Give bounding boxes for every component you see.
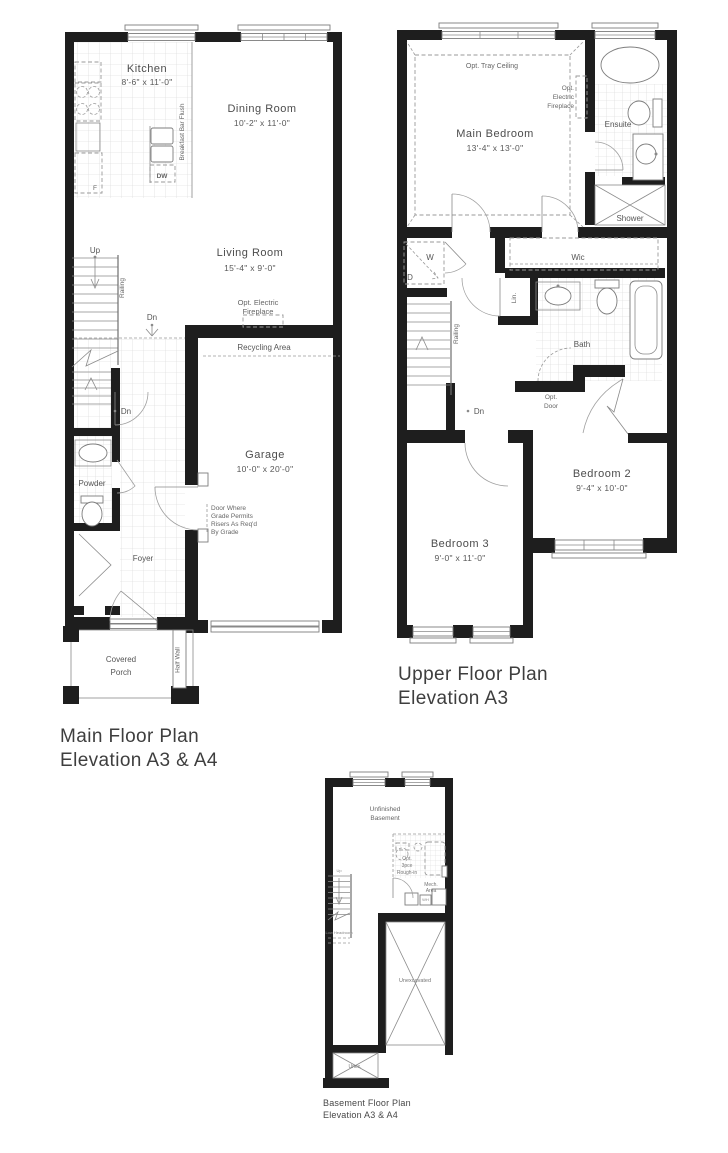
- unex-label: Unex.: [348, 1064, 361, 1070]
- basement-plan-subtitle: Elevation A3 & A4: [323, 1110, 398, 1120]
- fireplace-label-1: Opt. Electric: [238, 298, 279, 307]
- grade-note-2: Grade Permits: [211, 513, 254, 520]
- breakfast-bar-label: Breakfast Bar Flush: [179, 103, 186, 160]
- grade-note-4: By Grade: [211, 529, 239, 536]
- wic-label: Wic: [571, 253, 584, 262]
- wh-label: WH: [422, 897, 429, 902]
- basement-floor-plan: Unfinished Basement Opt. 3pce Rough-in M…: [310, 770, 475, 1153]
- bath-toilet: [597, 288, 617, 314]
- bedroom2-label: Bedroom 2: [573, 468, 631, 480]
- vanity-sink: [636, 144, 656, 164]
- grade-note-1: Door Where: [211, 505, 246, 512]
- main-bedroom-label: Main Bedroom: [456, 128, 534, 140]
- dining-label: Dining Room: [227, 103, 296, 115]
- unexcavated-label: Unexcavated: [399, 978, 431, 984]
- main-plan-title: Main Floor Plan: [60, 726, 199, 747]
- kitchen-label: Kitchen: [127, 63, 167, 75]
- u-fireplace-3: Fireplace: [547, 103, 574, 110]
- garage-dims: 10'-0" x 20'-0": [237, 464, 294, 474]
- low-headroom-label: Low Headroom: [325, 930, 353, 935]
- rough-in-3: Rough-in: [397, 870, 418, 876]
- tub: [601, 47, 659, 83]
- main-floor-plan: Kitchen 8'-6" x 11'-0" Dining Room 10'-2…: [55, 20, 355, 780]
- u-fireplace-1: Opt.: [562, 85, 574, 92]
- recycling-label: Recycling Area: [237, 343, 291, 352]
- unfinished-label-2: Basement: [370, 815, 399, 822]
- shower-label: Shower: [616, 214, 643, 223]
- dn-stairs-label: Dn: [147, 313, 157, 322]
- laundry-closet: [404, 242, 466, 284]
- upper-floor-plan: Opt. Tray Ceiling Main Bedroom 13'-4" x …: [390, 20, 690, 720]
- bedroom3-dims: 9'-0" x 11'-0": [434, 553, 485, 563]
- railing-label: Railing: [119, 278, 126, 298]
- rough-in-1: Opt.: [402, 856, 411, 862]
- garage-label: Garage: [245, 449, 285, 461]
- living-dims: 15'-4" x 9'-0": [224, 263, 276, 273]
- dw-label: DW: [157, 173, 169, 180]
- main-bedroom-dims: 13'-4" x 13'-0": [467, 143, 524, 153]
- half-wall-label: Half Wall: [175, 647, 182, 673]
- fireplace-label-2: Fireplace: [243, 307, 274, 316]
- upper-plan-title: Upper Floor Plan: [398, 664, 548, 685]
- bedroom2-dims: 9'-4" x 10'-0": [576, 483, 628, 493]
- dryer-label: D: [407, 273, 413, 282]
- kitchen-dims: 8'-6" x 11'-0": [121, 77, 172, 87]
- porch-label-2: Porch: [111, 668, 132, 677]
- main-plan-subtitle: Elevation A3 & A4: [60, 750, 218, 771]
- bath-label: Bath: [574, 340, 590, 349]
- u-railing-label: Railing: [453, 324, 460, 344]
- fridge-label: F: [93, 185, 97, 192]
- b-up-label: Up: [336, 868, 342, 873]
- dining-dims: 10'-2" x 11'-0": [234, 118, 290, 128]
- ensuite-label: Ensuite: [605, 120, 632, 129]
- bath-sink: [545, 287, 571, 305]
- up-label: Up: [90, 246, 101, 255]
- washer-label: W: [426, 253, 434, 262]
- dn-foyer-label: Dn: [121, 407, 131, 416]
- basement-plan-title: Basement Floor Plan: [323, 1098, 411, 1108]
- tray-ceiling-label: Opt. Tray Ceiling: [466, 63, 518, 70]
- porch-label-1: Covered: [106, 655, 136, 664]
- u-fireplace-2: Electric: [553, 94, 575, 101]
- bedroom3-label: Bedroom 3: [431, 538, 489, 550]
- linen-label: Lin.: [511, 293, 518, 304]
- opt-door-1: Opt.: [545, 394, 557, 401]
- unfinished-label-1: Unfinished: [370, 806, 401, 813]
- floor-plan-sheet: Kitchen 8'-6" x 11'-0" Dining Room 10'-2…: [0, 0, 728, 1153]
- unexcavated-areas: [333, 922, 445, 1078]
- grade-note-3: Risers As Req'd: [211, 521, 257, 528]
- upper-plan-subtitle: Elevation A3: [398, 688, 508, 709]
- rough-in-2: 3pce: [402, 863, 413, 869]
- living-label: Living Room: [217, 247, 284, 259]
- opt-door-2: Door: [544, 403, 559, 410]
- u-dn-label: Dn: [474, 407, 484, 416]
- powder-label: Powder: [78, 479, 105, 488]
- mech-label-2: Area: [426, 888, 437, 894]
- kitchen-sink: [151, 128, 173, 144]
- foyer-label: Foyer: [133, 554, 154, 563]
